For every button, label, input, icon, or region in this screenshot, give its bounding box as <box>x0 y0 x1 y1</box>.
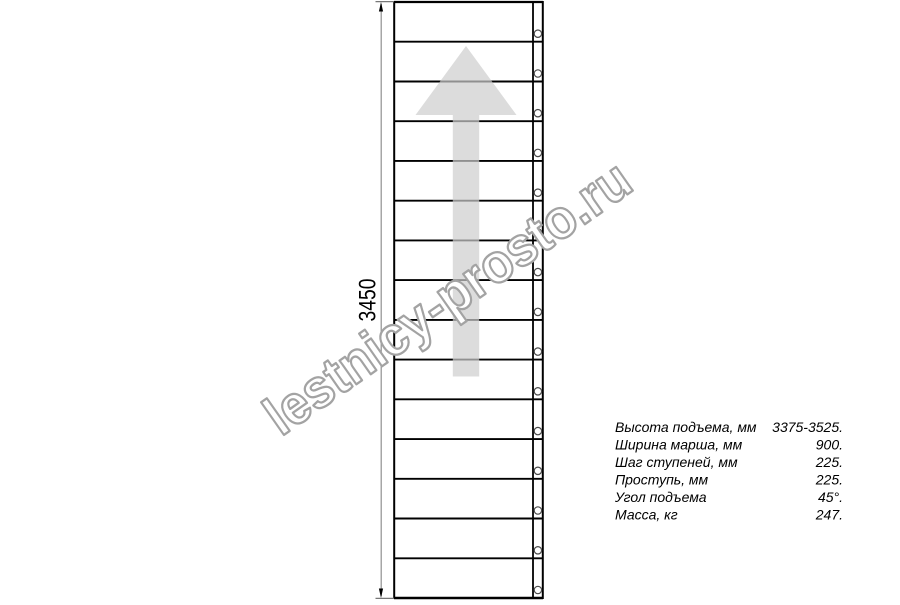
svg-text:Высота подъема, мм: Высота подъема, мм <box>615 419 757 435</box>
svg-text:Проступь, мм: Проступь, мм <box>615 472 709 488</box>
svg-text:Масса, кг: Масса, кг <box>615 507 678 523</box>
svg-text:3375-3525.: 3375-3525. <box>772 419 843 435</box>
svg-text:Угол подъема: Угол подъема <box>614 489 707 505</box>
svg-text:247.: 247. <box>815 507 843 523</box>
svg-text:45°.: 45°. <box>818 489 843 505</box>
svg-text:Ширина марша, мм: Ширина марша, мм <box>615 437 743 453</box>
svg-text:225.: 225. <box>815 472 843 488</box>
svg-text:900.: 900. <box>816 437 843 453</box>
svg-text:Шаг ступеней, мм: Шаг ступеней, мм <box>615 454 738 470</box>
svg-text:225.: 225. <box>815 454 843 470</box>
